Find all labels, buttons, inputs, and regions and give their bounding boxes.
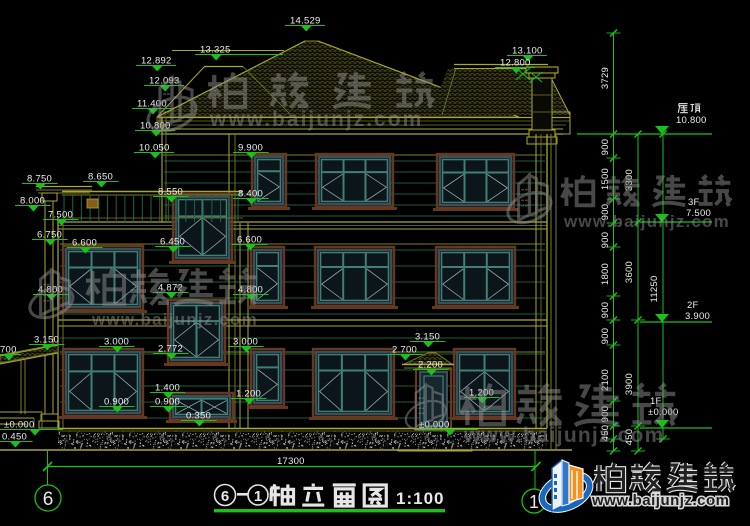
svg-text:8.650: 8.650 (88, 172, 113, 183)
svg-text:6: 6 (43, 489, 54, 510)
svg-text:www.baijunjz.com: www.baijunjz.com (91, 310, 258, 329)
svg-text:11250: 11250 (649, 276, 660, 303)
svg-text:900: 900 (600, 328, 611, 345)
svg-text:www.baijunjz.com: www.baijunjz.com (463, 424, 664, 447)
svg-text:13.100: 13.100 (512, 46, 543, 57)
svg-text:6.450: 6.450 (160, 237, 185, 248)
svg-text:12.800: 12.800 (500, 58, 531, 69)
svg-text:7.500: 7.500 (48, 210, 73, 221)
svg-text:www.baijunjz.com: www.baijunjz.com (591, 492, 729, 509)
svg-text:2F: 2F (687, 300, 699, 311)
svg-text:900: 900 (600, 139, 611, 156)
svg-text:3729: 3729 (600, 67, 611, 89)
svg-text:9.900: 9.900 (238, 143, 263, 154)
svg-text:www.baijunjz.com: www.baijunjz.com (209, 108, 423, 131)
svg-text:8.550: 8.550 (158, 187, 183, 198)
svg-text:1: 1 (529, 492, 539, 512)
svg-text:0.900: 0.900 (155, 397, 180, 408)
svg-text:6.750: 6.750 (37, 230, 62, 241)
svg-text:3.000: 3.000 (104, 337, 129, 348)
svg-text:700: 700 (0, 345, 17, 356)
svg-text:3600: 3600 (624, 261, 635, 283)
svg-text:1: 1 (254, 488, 262, 505)
svg-text:0.450: 0.450 (2, 432, 27, 443)
svg-text:0.900: 0.900 (104, 397, 129, 408)
svg-text:12.892: 12.892 (141, 56, 172, 67)
svg-text:3F: 3F (688, 197, 700, 208)
svg-text:17300: 17300 (277, 456, 305, 467)
svg-text:6.600: 6.600 (237, 235, 262, 246)
svg-text:14.529: 14.529 (290, 16, 321, 27)
svg-text:2.772: 2.772 (158, 344, 183, 355)
svg-text:3.150: 3.150 (415, 332, 440, 343)
svg-text:2.700: 2.700 (392, 345, 417, 356)
svg-text:3.150: 3.150 (34, 335, 59, 346)
svg-text:0.350: 0.350 (186, 411, 211, 422)
svg-text:3900: 3900 (624, 373, 635, 395)
svg-text:13.325: 13.325 (200, 45, 231, 56)
svg-text:10.050: 10.050 (139, 143, 170, 154)
svg-text:3.000: 3.000 (233, 337, 258, 348)
svg-text:8.000: 8.000 (20, 196, 45, 207)
svg-text:900: 900 (600, 232, 611, 249)
svg-text:10.800: 10.800 (676, 115, 707, 126)
svg-text:1:100: 1:100 (396, 489, 444, 508)
svg-text:8.400: 8.400 (238, 189, 263, 200)
svg-text:1.200: 1.200 (236, 389, 261, 400)
svg-text:6: 6 (221, 488, 229, 505)
svg-text:6.600: 6.600 (72, 238, 97, 249)
svg-text:8.750: 8.750 (27, 174, 52, 185)
svg-text:3.900: 3.900 (685, 311, 710, 322)
svg-text:1800: 1800 (600, 263, 611, 285)
svg-text:www.baijunjz.com: www.baijunjz.com (563, 212, 730, 231)
svg-text:±0.000: ±0.000 (4, 420, 35, 431)
svg-text:2.200: 2.200 (418, 360, 443, 371)
svg-text:900: 900 (600, 302, 611, 319)
svg-text:1.400: 1.400 (155, 383, 180, 394)
